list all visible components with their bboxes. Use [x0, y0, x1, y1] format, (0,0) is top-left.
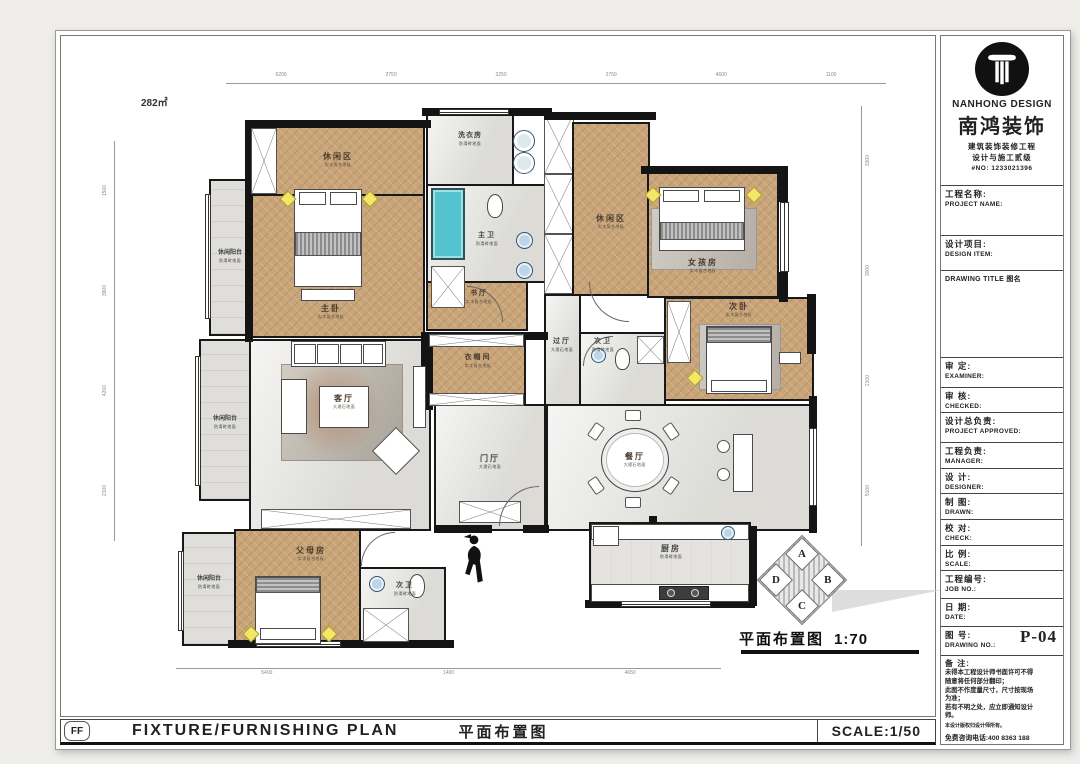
- tb-row-design-item: 设计项目:DESIGN ITEM:: [941, 236, 1063, 272]
- room-laundry: [426, 114, 514, 186]
- closet-strip: [544, 114, 574, 174]
- room-balcony-mid-left: [199, 339, 251, 501]
- window: [439, 109, 509, 115]
- key-plan-compass: A B C D: [756, 534, 848, 626]
- tb-row-checked: 审 核:CHECKED:: [941, 388, 1063, 414]
- washing-machine: [513, 130, 535, 152]
- bed-foot: [260, 628, 316, 640]
- dining-chair: [625, 410, 641, 421]
- wall-segment: [523, 332, 548, 340]
- window: [178, 551, 184, 631]
- brand-name-en: NANHONG DESIGN: [952, 99, 1052, 110]
- pillow: [663, 190, 699, 202]
- washing-machine: [513, 152, 535, 174]
- total-area-label: 282㎡: [141, 94, 168, 109]
- stove-burner: [667, 589, 675, 597]
- tb-row-examiner: 审 定:EXAMINER:: [941, 358, 1063, 388]
- tb-notes: 备 注: 未得本工程设计师书面许可不得 随意将任何部分翻印； 此图不作度量尺寸，…: [941, 656, 1063, 744]
- plan-drawing-area: 282㎡ 620027503250275046001100 1500390042…: [60, 35, 936, 717]
- sofa-cushion: [363, 344, 383, 364]
- dimension-line-left: [114, 141, 115, 541]
- tb-row-date: 日 期:DATE:: [941, 599, 1063, 627]
- room-dining: [546, 404, 816, 531]
- caption-underline: [741, 650, 919, 654]
- door-swing: [589, 282, 629, 322]
- room-leisure-top-left: [251, 126, 425, 196]
- wall-segment: [434, 525, 492, 533]
- dimension-labels-left: 1500390042002100: [102, 141, 112, 541]
- room-leisure-top-right: [572, 122, 650, 296]
- shower: [637, 336, 664, 364]
- pillow: [299, 192, 326, 205]
- tb-row-designer: 设 计:DESIGNER:: [941, 469, 1063, 495]
- bed-headboard: [707, 327, 771, 343]
- bathtub: [431, 188, 465, 260]
- wall-segment: [807, 294, 816, 354]
- room-hall: [544, 294, 581, 406]
- wall-segment: [544, 112, 656, 120]
- cloak-cabinet: [429, 393, 524, 406]
- wall-segment: [779, 166, 788, 202]
- footer-scale: SCALE:1/50: [817, 720, 935, 742]
- wall-segment: [245, 120, 431, 128]
- armchair: [281, 379, 307, 434]
- bar-stool: [717, 440, 730, 453]
- shower: [431, 266, 465, 308]
- bar-table: [733, 434, 753, 492]
- sofa-cushion: [340, 344, 362, 364]
- shower: [363, 608, 409, 642]
- toilet: [615, 348, 630, 370]
- coffee-table: [319, 386, 369, 428]
- toilet: [487, 194, 503, 218]
- fridge: [593, 526, 619, 546]
- footer-title-en: FIXTURE/FURNISHING PLAN: [132, 722, 398, 740]
- drawing-number: P-04: [1020, 627, 1057, 647]
- sink: [516, 232, 533, 249]
- bed-blanket: [295, 232, 361, 256]
- wall-segment: [809, 506, 817, 533]
- pillow: [704, 190, 740, 202]
- wardrobe: [261, 509, 411, 529]
- room-balcony-bottom-left: [182, 532, 236, 646]
- license-number: #NO: 1233021396: [972, 165, 1033, 172]
- sheet-footer-bar: FF FIXTURE/FURNISHING PLAN 平面布置图 SCALE:1…: [60, 719, 936, 745]
- column-glyph-icon: [983, 50, 1021, 88]
- sink: [516, 262, 533, 279]
- tb-row-drawing-title: DRAWING TITLE 图名: [941, 271, 1063, 358]
- tb-row-drawn: 制 图:DRAWN:: [941, 494, 1063, 520]
- tb-row-scale: 比 例:SCALE:: [941, 546, 1063, 572]
- closet-strip: [544, 174, 574, 234]
- sofa-cushion: [317, 344, 339, 364]
- tv-cabinet: [413, 366, 426, 428]
- screenshot-root: { "page": { "area_label": "282㎡", "capti…: [0, 0, 1080, 764]
- bed-bench: [301, 289, 355, 301]
- sofa-cushion: [294, 344, 316, 364]
- wall-segment: [809, 396, 817, 428]
- tb-row-drawing-no: P-04图 号:DRAWING NO.:: [941, 627, 1063, 657]
- bed-headboard: [256, 577, 320, 593]
- cloak-cabinet: [429, 334, 524, 347]
- tb-row-project-name: 工程名称:PROJECT NAME:: [941, 186, 1063, 235]
- dimension-line-right: [861, 106, 862, 546]
- hotline-phone: 免费咨询电话:400 8363 188: [945, 732, 1059, 742]
- door-swing: [361, 532, 395, 566]
- dimension-line-top: [226, 83, 886, 84]
- bar-stool: [717, 468, 730, 481]
- title-block: NANHONG DESIGN 南鸿装饰 建筑装饰装修工程 设计与施工贰级 #NO…: [940, 35, 1064, 745]
- dimension-labels-bottom: 540014004650: [176, 670, 721, 676]
- sink: [369, 576, 385, 592]
- tb-row-job-no: 工程编号:JOB NO.:: [941, 571, 1063, 599]
- wardrobe: [667, 301, 691, 363]
- wardrobe: [251, 128, 277, 194]
- dimension-labels-top: 620027503250275046001100: [226, 72, 886, 78]
- tb-row-project-approved: 设计总负责:PROJECT APPROVED:: [941, 413, 1063, 443]
- tb-row-manager: 工程负责:MANAGER:: [941, 443, 1063, 469]
- dining-table: 餐厅 大理石地面: [601, 428, 669, 492]
- nanhong-logo-icon: [975, 42, 1029, 96]
- room-label-dining: 餐厅 大理石地面: [621, 452, 649, 468]
- wall-segment: [523, 525, 549, 533]
- drawing-sheet: 282㎡ 620027503250275046001100 1500390042…: [55, 30, 1071, 750]
- brand-tagline-1: 建筑装饰装修工程: [968, 141, 1036, 152]
- window: [205, 194, 211, 319]
- wall-segment: [641, 166, 787, 174]
- window: [809, 428, 817, 506]
- kitchen-sink: [721, 526, 735, 540]
- logo-section: NANHONG DESIGN 南鸿装饰 建筑装饰装修工程 设计与施工贰级 #NO…: [941, 36, 1063, 186]
- copyright-note: 本设计版权归设计师所有。: [945, 722, 1059, 729]
- bay-window: [780, 202, 789, 272]
- brand-name-cn: 南鸿装饰: [958, 110, 1046, 139]
- dining-chair: [625, 497, 641, 508]
- tb-row-check: 校 对:CHECK:: [941, 520, 1063, 546]
- bed-blanket: [660, 222, 744, 240]
- window: [195, 356, 201, 486]
- wall-segment: [779, 272, 788, 302]
- bed-foot: [711, 380, 767, 392]
- compass-tail: [832, 590, 942, 612]
- side-table: [779, 352, 801, 364]
- plan-caption: 平面布置图1:70: [739, 628, 868, 649]
- stove-burner: [691, 589, 699, 597]
- pillow: [330, 192, 357, 205]
- toilet: [409, 574, 425, 598]
- footer-title-cn: 平面布置图: [458, 721, 548, 742]
- brand-tagline-2: 设计与施工贰级: [972, 152, 1032, 163]
- dimension-labels-right: 3300300021005100: [865, 106, 875, 546]
- dimension-line-bottom: [176, 668, 721, 669]
- person-figure: [459, 534, 489, 584]
- plan-code-badge: FF: [64, 721, 90, 741]
- closet-strip: [544, 234, 574, 294]
